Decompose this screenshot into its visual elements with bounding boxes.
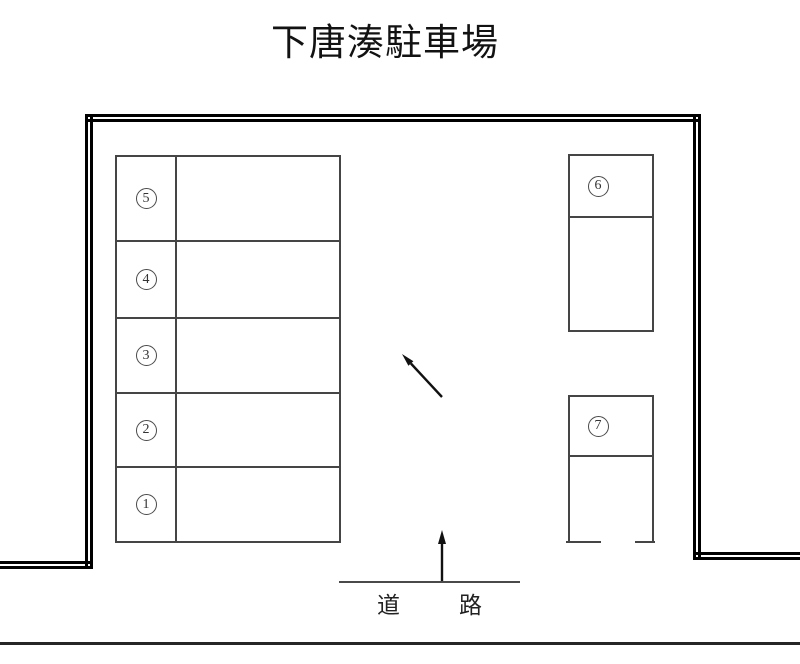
space-bay-1 [177, 468, 339, 541]
circled-number-5: 5 [136, 188, 157, 209]
space-number-cell-3: 3 [117, 319, 177, 394]
parking-lot-diagram: 下唐湊駐車場 5 4 3 2 1 6 [0, 0, 800, 664]
space-number-cell-1: 1 [117, 468, 177, 541]
space-bay-7 [570, 457, 652, 543]
circled-number-6: 6 [588, 176, 609, 197]
boundary-wall-left [85, 114, 93, 569]
up-left-diagonal-arrow-icon [393, 345, 453, 405]
space-number-cell-4: 4 [117, 242, 177, 319]
boundary-wall-top [85, 114, 701, 122]
circled-number-4: 4 [136, 269, 157, 290]
boundary-wing-bottom-right [693, 552, 800, 560]
road-label-left-char: 道 [377, 586, 400, 620]
parking-space-7-box: 7 [568, 395, 654, 543]
space-7-bottom-border-left-segment [566, 541, 601, 543]
parking-space-6-box: 6 [568, 154, 654, 332]
boundary-wing-bottom-left [0, 561, 93, 569]
bottom-page-rule [0, 642, 800, 645]
space-number-cell-7: 7 [570, 397, 652, 457]
space-number-cell-5: 5 [117, 157, 177, 242]
page-title: 下唐湊駐車場 [0, 12, 800, 66]
space-bay-3 [177, 319, 339, 394]
road-label: 道 路 [339, 586, 520, 620]
circled-number-7: 7 [588, 416, 609, 437]
space-bay-6 [570, 218, 652, 330]
space-number-cell-2: 2 [117, 394, 177, 468]
circled-number-1: 1 [136, 494, 157, 515]
road-label-right-char: 路 [459, 586, 482, 620]
circled-number-2: 2 [136, 420, 157, 441]
space-bay-2 [177, 394, 339, 468]
parking-spaces-table: 5 4 3 2 1 [115, 155, 341, 543]
space-bay-4 [177, 242, 339, 319]
road-line [339, 581, 520, 583]
space-bay-5 [177, 157, 339, 242]
boundary-wall-right [693, 114, 701, 560]
space-number-cell-6: 6 [570, 156, 652, 218]
circled-number-3: 3 [136, 345, 157, 366]
road-entrance-arrow-icon [431, 527, 453, 584]
space-7-bottom-border-right-segment [635, 541, 655, 543]
